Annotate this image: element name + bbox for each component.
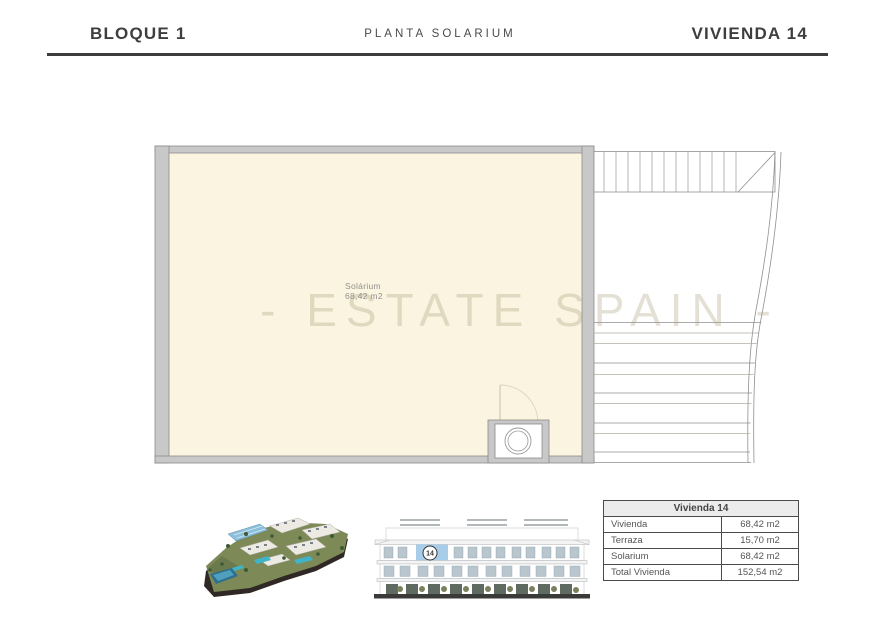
- row-label: Solarium: [604, 549, 722, 564]
- table-row: Total Vivienda 152,54 m2: [604, 565, 798, 580]
- row-value: 152,54 m2: [722, 565, 798, 580]
- estate-spain-watermark: - ESTATE SPAIN -: [240, 283, 800, 337]
- pergola-slats: [400, 520, 568, 525]
- row-value: 68,42 m2: [722, 517, 798, 532]
- upper-stair-flight: [594, 152, 775, 193]
- room-label: Solárium 68,42 m2: [345, 281, 383, 301]
- unit-badge: 14: [423, 546, 437, 560]
- building-elevation-image: 14: [372, 505, 592, 602]
- table-row: Terraza 15,70 m2: [604, 533, 798, 549]
- row-label: Terraza: [604, 533, 722, 548]
- row-label: Total Vivienda: [604, 565, 722, 580]
- row-label: Vivienda: [604, 517, 722, 532]
- summary-table-title: Vivienda 14: [604, 501, 798, 517]
- site-aerial-image: [198, 508, 354, 598]
- room-name: Solárium: [345, 281, 383, 291]
- unit-badge-number: 14: [426, 551, 434, 558]
- table-row: Solarium 68,42 m2: [604, 549, 798, 565]
- row-value: 15,70 m2: [722, 533, 798, 548]
- table-row: Vivienda 68,42 m2: [604, 517, 798, 533]
- shower-fixture: [488, 420, 549, 463]
- room-area: 68,42 m2: [345, 291, 383, 301]
- lower-stair-treads: [594, 323, 780, 453]
- row-value: 68,42 m2: [722, 549, 798, 564]
- unit-summary-table: Vivienda 14 Vivienda 68,42 m2 Terraza 15…: [603, 500, 799, 581]
